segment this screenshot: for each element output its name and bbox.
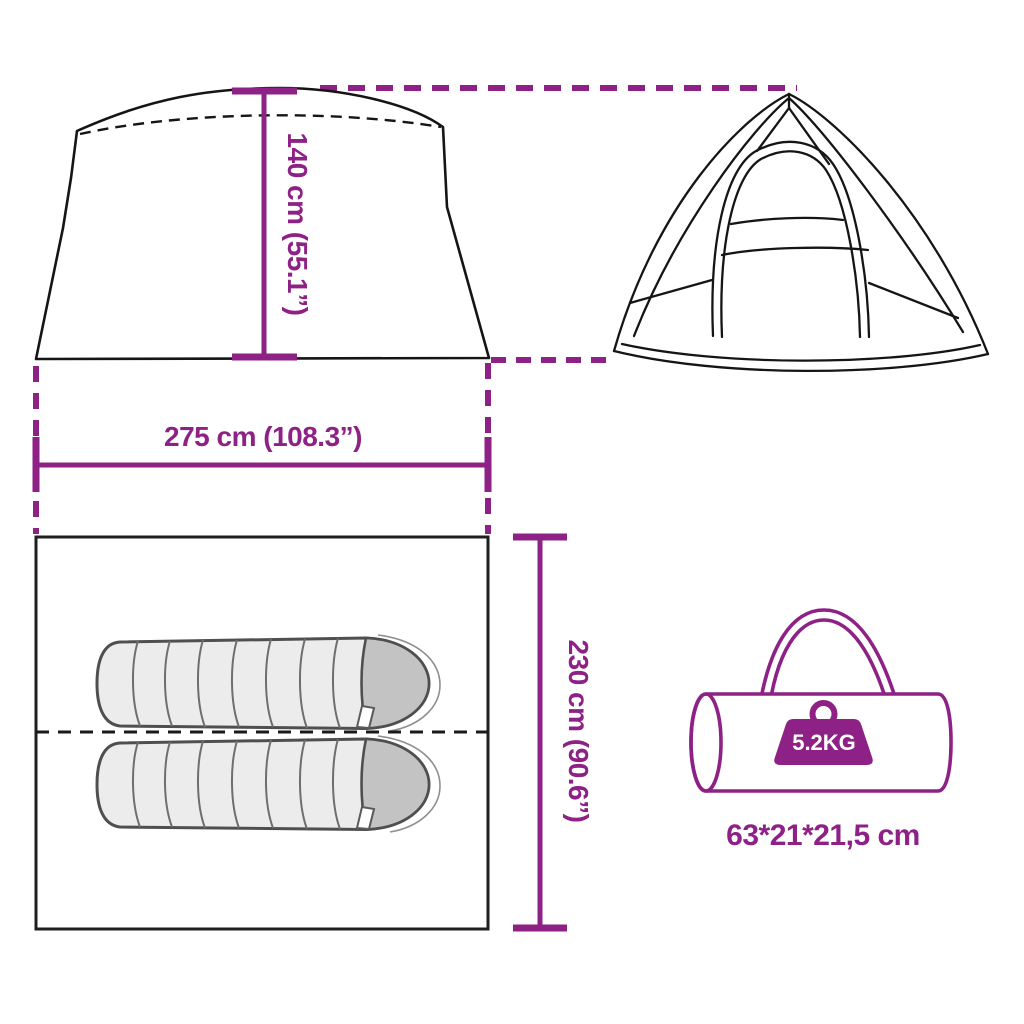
carry-bag-size-label: 63*21*21,5 cm: [673, 818, 973, 854]
carry-bag: [691, 610, 951, 791]
tent-outer-left: [614, 94, 789, 351]
tent-dome-seam: [722, 248, 868, 255]
width-dimension-label: 275 cm (108.3”): [103, 419, 423, 455]
tent-window-bottom-seam: [731, 218, 843, 224]
tent-outer-right: [789, 94, 988, 354]
tent-base-inner: [622, 344, 980, 361]
tent-assembled-view: [614, 94, 988, 371]
height-dimension-label: 140 cm (55.1”): [279, 114, 315, 334]
tent-left-panel-seam: [630, 280, 712, 303]
depth-dimension-label: 230 cm (90.6”): [560, 621, 596, 841]
sleeping-bag-bottom: [97, 736, 440, 832]
diagram-artwork: [0, 0, 1024, 1024]
tent-door-arch-outer: [712, 142, 869, 337]
tent-sleeve-right: [789, 98, 963, 332]
tent-door-arch-inner: [721, 151, 860, 337]
sleeping-bag-top: [97, 635, 440, 731]
carry-bag-weight-label: 5.2KG: [764, 730, 884, 756]
depth-dimension-line: [513, 537, 567, 928]
product-dimension-diagram: 140 cm (55.1”) 275 cm (108.3”) 230 cm (9…: [0, 0, 1024, 1024]
